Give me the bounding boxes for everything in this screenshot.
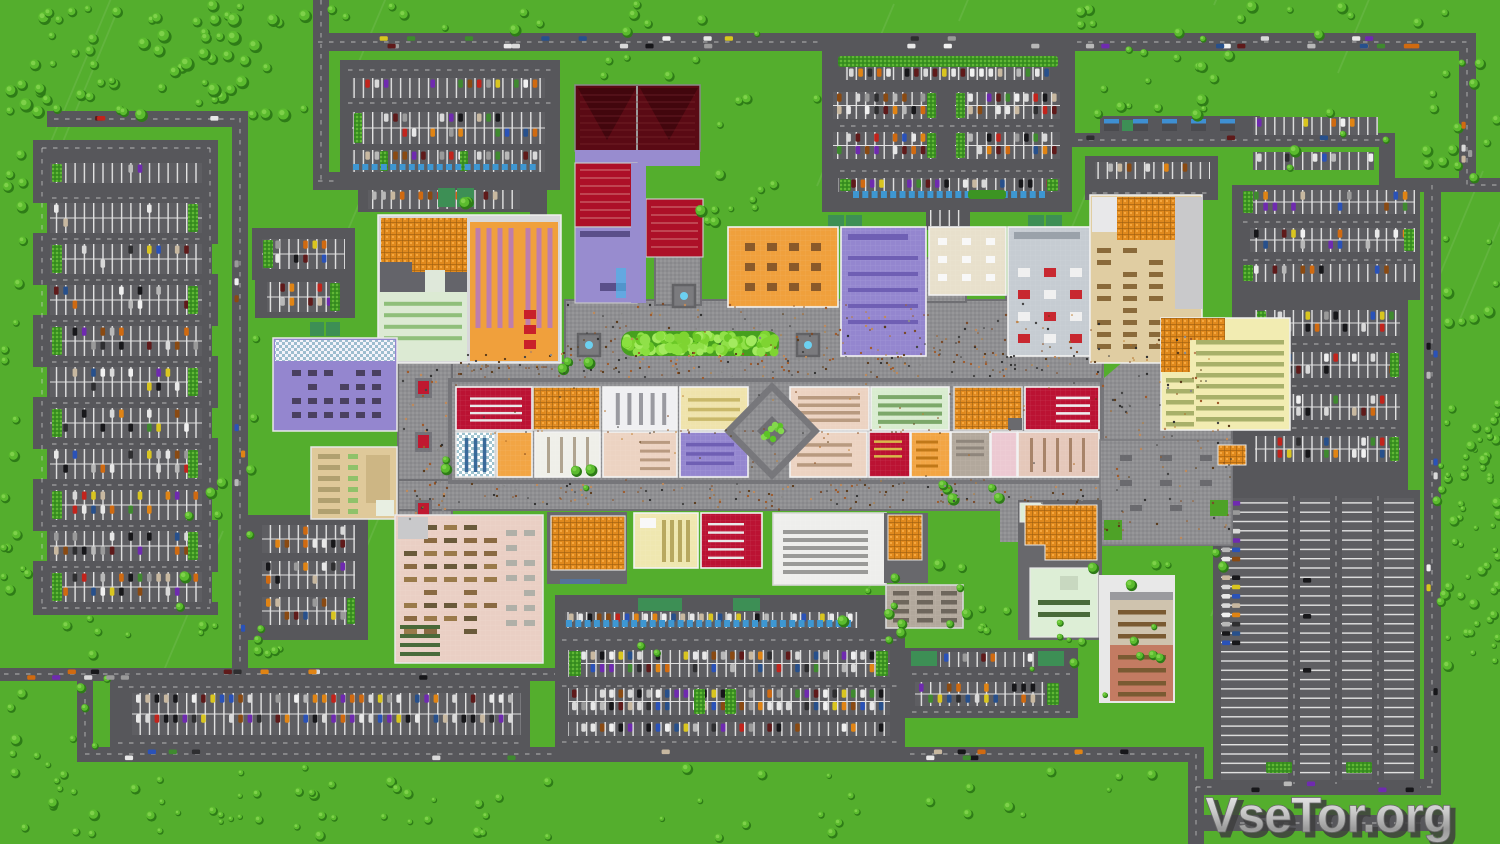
svg-text:VseTor.org: VseTor.org [1205,787,1452,843]
